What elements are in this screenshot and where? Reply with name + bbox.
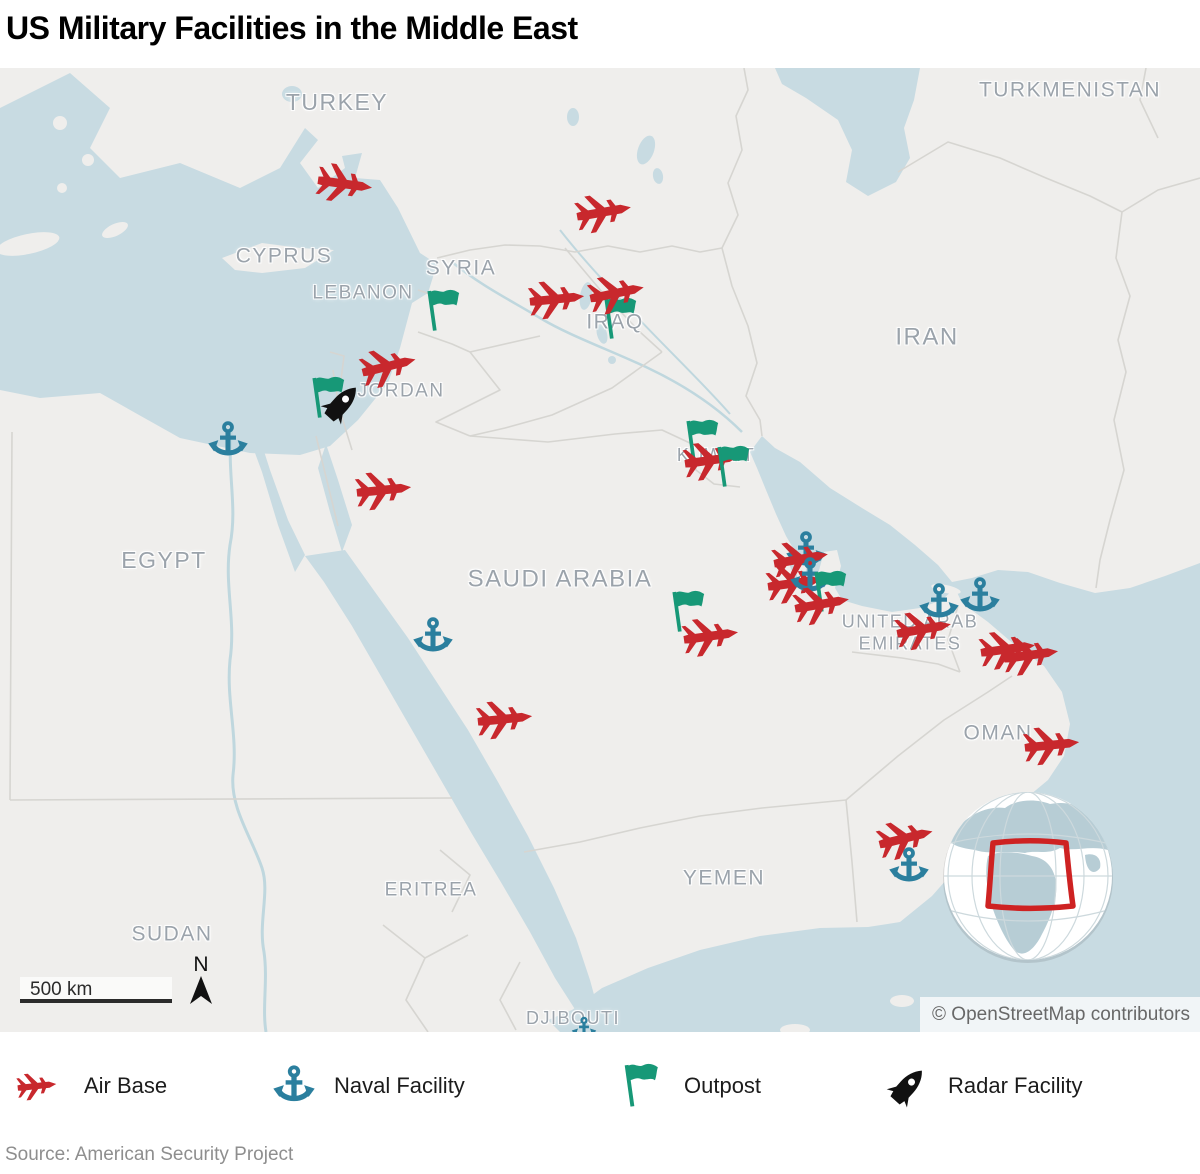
air-base-icon xyxy=(8,1064,66,1108)
scale-label: 500 km xyxy=(30,979,92,1000)
header: US Military Facilities in the Middle Eas… xyxy=(0,0,1200,68)
north-arrow: N xyxy=(188,954,214,1009)
marker-air-base[interactable] xyxy=(358,335,420,397)
legend-item-radar: Radar Facility xyxy=(886,1032,1082,1140)
legend: Air Base Naval Facility Outpost Radar Fa… xyxy=(0,1032,1200,1140)
marker-naval[interactable] xyxy=(959,576,1001,618)
marker-air-base[interactable] xyxy=(526,268,588,330)
marker-air-base[interactable] xyxy=(353,459,415,521)
marker-air-base[interactable] xyxy=(573,181,635,243)
scale-bar: 500 km xyxy=(20,977,172,1003)
markers-layer xyxy=(0,68,1200,1032)
flag-icon xyxy=(618,1062,666,1110)
north-arrow-icon xyxy=(190,976,212,1004)
marker-air-base[interactable] xyxy=(680,605,742,667)
marker-naval[interactable] xyxy=(207,420,249,462)
marker-air-base[interactable] xyxy=(474,688,536,750)
marker-air-base[interactable] xyxy=(893,598,955,660)
source-note: Source: American Security Project xyxy=(0,1140,1200,1174)
marker-air-base[interactable] xyxy=(1000,624,1062,686)
legend-label-radar: Radar Facility xyxy=(948,1073,1082,1099)
marker-outpost[interactable] xyxy=(421,288,467,334)
north-label: N xyxy=(188,954,214,976)
legend-item-naval: Naval Facility xyxy=(272,1032,465,1140)
marker-air-base[interactable] xyxy=(314,153,376,215)
anchor-icon xyxy=(272,1064,316,1108)
rocket-icon xyxy=(886,1064,930,1108)
marker-naval[interactable] xyxy=(412,616,454,658)
marker-air-base[interactable] xyxy=(791,573,853,635)
marker-air-base[interactable] xyxy=(1021,714,1083,776)
legend-item-outpost: Outpost xyxy=(618,1032,761,1140)
marker-outpost[interactable] xyxy=(711,444,757,490)
marker-naval[interactable] xyxy=(888,846,930,888)
map-attribution[interactable]: © OpenStreetMap contributors xyxy=(920,997,1200,1032)
legend-item-air-base: Air Base xyxy=(8,1032,167,1140)
legend-label-air-base: Air Base xyxy=(84,1073,167,1099)
legend-label-outpost: Outpost xyxy=(684,1073,761,1099)
legend-label-naval: Naval Facility xyxy=(334,1073,465,1099)
page-title: US Military Facilities in the Middle Eas… xyxy=(6,10,1200,47)
marker-naval[interactable] xyxy=(571,1016,597,1032)
map-canvas: TURKEYTURKMENISTANCYPRUSSYRIALEBANONIRAQ… xyxy=(0,68,1200,1032)
marker-air-base[interactable] xyxy=(586,262,648,324)
